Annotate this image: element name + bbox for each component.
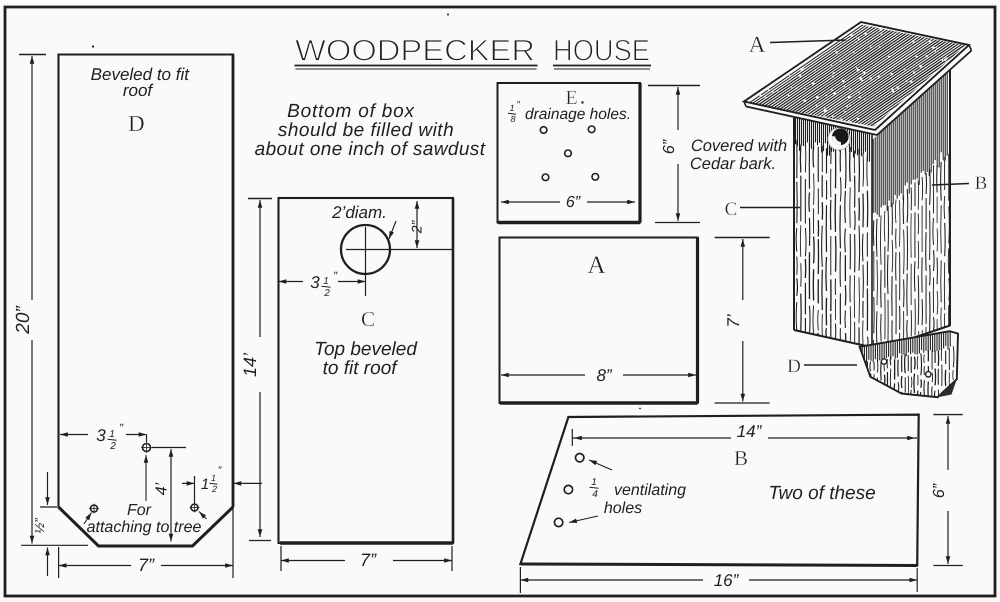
svg-text:6”: 6” (661, 139, 678, 154)
svg-text:7”: 7” (360, 550, 377, 570)
svg-text:8: 8 (510, 114, 515, 124)
svg-text:14”: 14” (737, 422, 763, 441)
svg-text:D: D (128, 111, 145, 136)
svg-text:4: 4 (592, 489, 598, 500)
svg-text:20”: 20” (13, 305, 34, 335)
svg-text:6”: 6” (566, 194, 581, 211)
svg-text:2: 2 (109, 441, 116, 452)
svg-text:to fit roof: to fit roof (323, 358, 399, 379)
svg-text:A: A (587, 252, 605, 279)
svg-text:WOODPECKER: WOODPECKER (295, 35, 535, 68)
svg-text:7”: 7” (138, 555, 155, 575)
svg-text:7’: 7’ (724, 314, 743, 327)
svg-text:2: 2 (323, 288, 330, 299)
svg-text:Bottom of box: Bottom of box (287, 101, 415, 122)
svg-text:3: 3 (96, 426, 106, 445)
svg-text:Cedar bark.: Cedar bark. (690, 155, 776, 173)
svg-text:should be filled with: should be filled with (278, 120, 454, 141)
svg-text:Top beveled: Top beveled (314, 339, 418, 360)
svg-text:4’: 4’ (154, 482, 171, 495)
svg-text:2’diam.: 2’diam. (331, 203, 387, 222)
svg-text:1: 1 (509, 103, 514, 113)
svg-text:16”: 16” (714, 571, 740, 590)
svg-text:3: 3 (310, 273, 320, 292)
svg-text:drainage holes.: drainage holes. (525, 106, 631, 123)
svg-text:holes: holes (604, 500, 642, 517)
svg-text:1: 1 (109, 429, 115, 440)
svg-text:D: D (787, 356, 801, 377)
svg-text:attaching to tree: attaching to tree (87, 519, 202, 536)
svg-text:Two of these: Two of these (768, 483, 875, 504)
svg-text:½”: ½” (32, 518, 47, 534)
svg-text:B: B (734, 446, 748, 470)
svg-text:Covered with: Covered with (691, 137, 787, 155)
svg-text:ventilating: ventilating (614, 482, 686, 499)
svg-text:roof: roof (123, 81, 155, 100)
svg-text:For: For (127, 502, 152, 519)
svg-text:1: 1 (323, 276, 329, 287)
svg-text:C: C (725, 199, 738, 220)
svg-text:1: 1 (211, 473, 216, 483)
svg-text:C: C (361, 307, 375, 331)
svg-text:8”: 8” (596, 366, 612, 385)
svg-text:2”: 2” (409, 219, 425, 234)
svg-text:HOUSE: HOUSE (553, 35, 650, 68)
svg-text:B: B (975, 173, 988, 194)
svg-text:A: A (749, 32, 766, 57)
svg-text:14’: 14’ (240, 352, 260, 377)
svg-text:6”: 6” (931, 483, 948, 498)
svg-text:about one inch of sawdust: about one inch of sawdust (255, 139, 486, 160)
svg-text:2: 2 (211, 484, 217, 494)
svg-text:1: 1 (591, 477, 597, 488)
svg-text:1: 1 (201, 476, 209, 493)
